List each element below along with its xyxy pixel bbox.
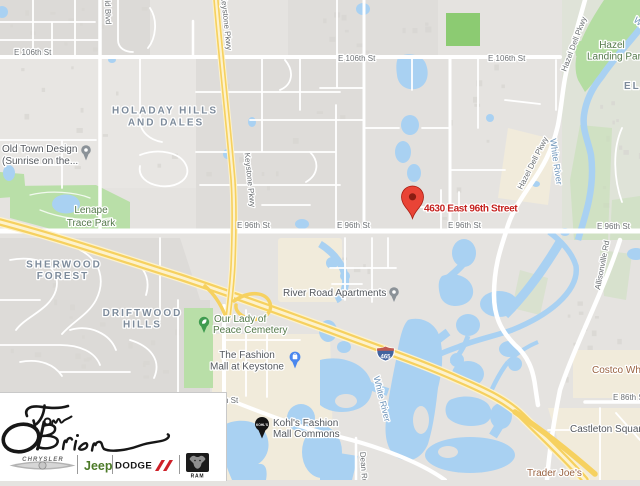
svg-text:Mall at Keystone: Mall at Keystone [210,362,284,373]
svg-text:Kohl's Fashion: Kohl's Fashion [273,418,338,429]
svg-text:Trader Joe's: Trader Joe's [527,468,582,479]
svg-text:Dean Rd: Dean Rd [358,452,369,480]
svg-text:E 106th St: E 106th St [338,54,376,63]
svg-text:Costco Wholesale: Costco Wholesale [592,365,640,376]
svg-text:Castleton Square: Castleton Square [570,424,640,435]
svg-text:E 96th St: E 96th St [448,221,482,230]
svg-text:DODGE: DODGE [115,461,152,472]
svg-text:465: 465 [380,355,391,361]
svg-text:SHERWOOD: SHERWOOD [26,260,102,271]
svg-text:E 106th St: E 106th St [14,48,52,57]
svg-text:(Sunrise on the...: (Sunrise on the... [2,156,78,167]
svg-text:Peace Cemetery: Peace Cemetery [213,325,287,336]
svg-text:Old Town Design: Old Town Design [2,144,77,155]
svg-text:Our Lady of: Our Lady of [214,314,266,325]
svg-text:E 96th St: E 96th St [597,222,631,231]
svg-text:AND DALES: AND DALES [128,118,204,129]
svg-text:Lenape: Lenape [74,205,108,216]
svg-text:Mall Commons: Mall Commons [273,429,340,440]
svg-text:The Fashion: The Fashion [219,350,275,361]
svg-text:RAM: RAM [191,474,205,480]
svg-text:E 96th St: E 96th St [237,221,271,230]
svg-text:E 86th St: E 86th St [613,393,640,402]
svg-text:FOREST: FOREST [37,271,90,282]
svg-text:E 106th St: E 106th St [488,54,526,63]
svg-text:KOHL'S: KOHL'S [256,423,268,427]
svg-text:4630 East 96th Street: 4630 East 96th Street [424,204,518,215]
svg-text:Landing Park: Landing Park [587,52,640,63]
svg-text:DRIFTWOOD: DRIFTWOOD [103,308,183,319]
svg-text:Trace Park: Trace Park [67,218,117,229]
svg-text:Hazel: Hazel [599,40,625,51]
svg-text:HOLADAY HILLS: HOLADAY HILLS [112,106,218,117]
svg-text:HILLS: HILLS [123,320,162,331]
svg-text:River Road Apartments: River Road Apartments [283,288,386,299]
svg-text:ELLER: ELLER [624,81,640,92]
svg-text:Jeep: Jeep [84,459,113,473]
svg-text:E 96th St: E 96th St [337,221,371,230]
